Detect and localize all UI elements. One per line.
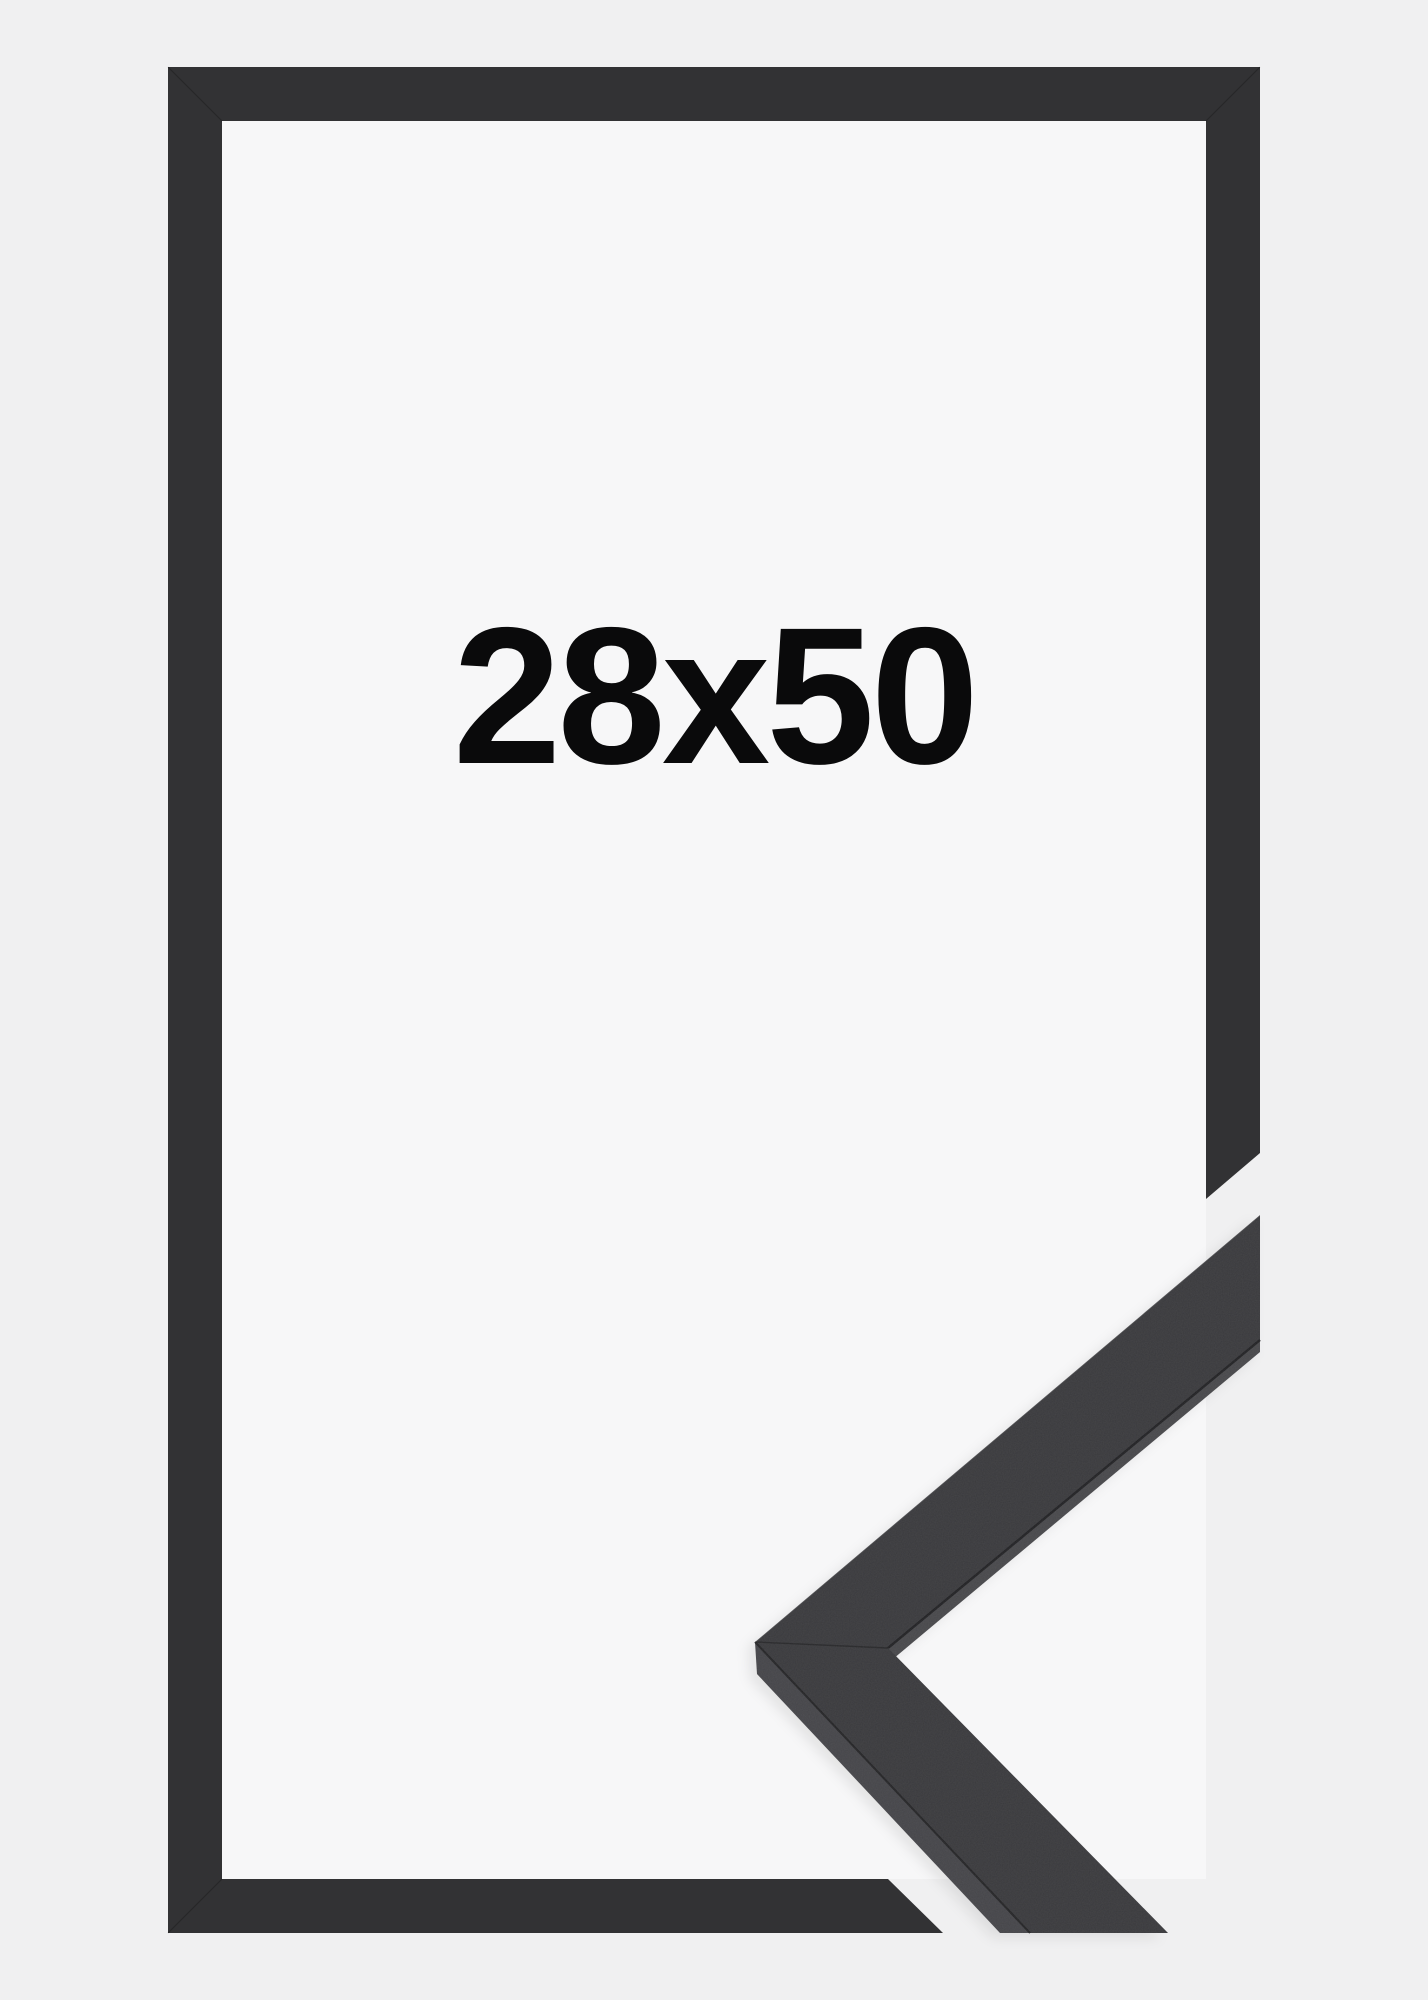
frame-interior xyxy=(222,121,1206,1879)
size-label: 28x50 xyxy=(453,587,975,805)
product-image-canvas: 28x50 xyxy=(0,0,1428,2000)
frame-product-illustration: 28x50 xyxy=(0,0,1428,2000)
